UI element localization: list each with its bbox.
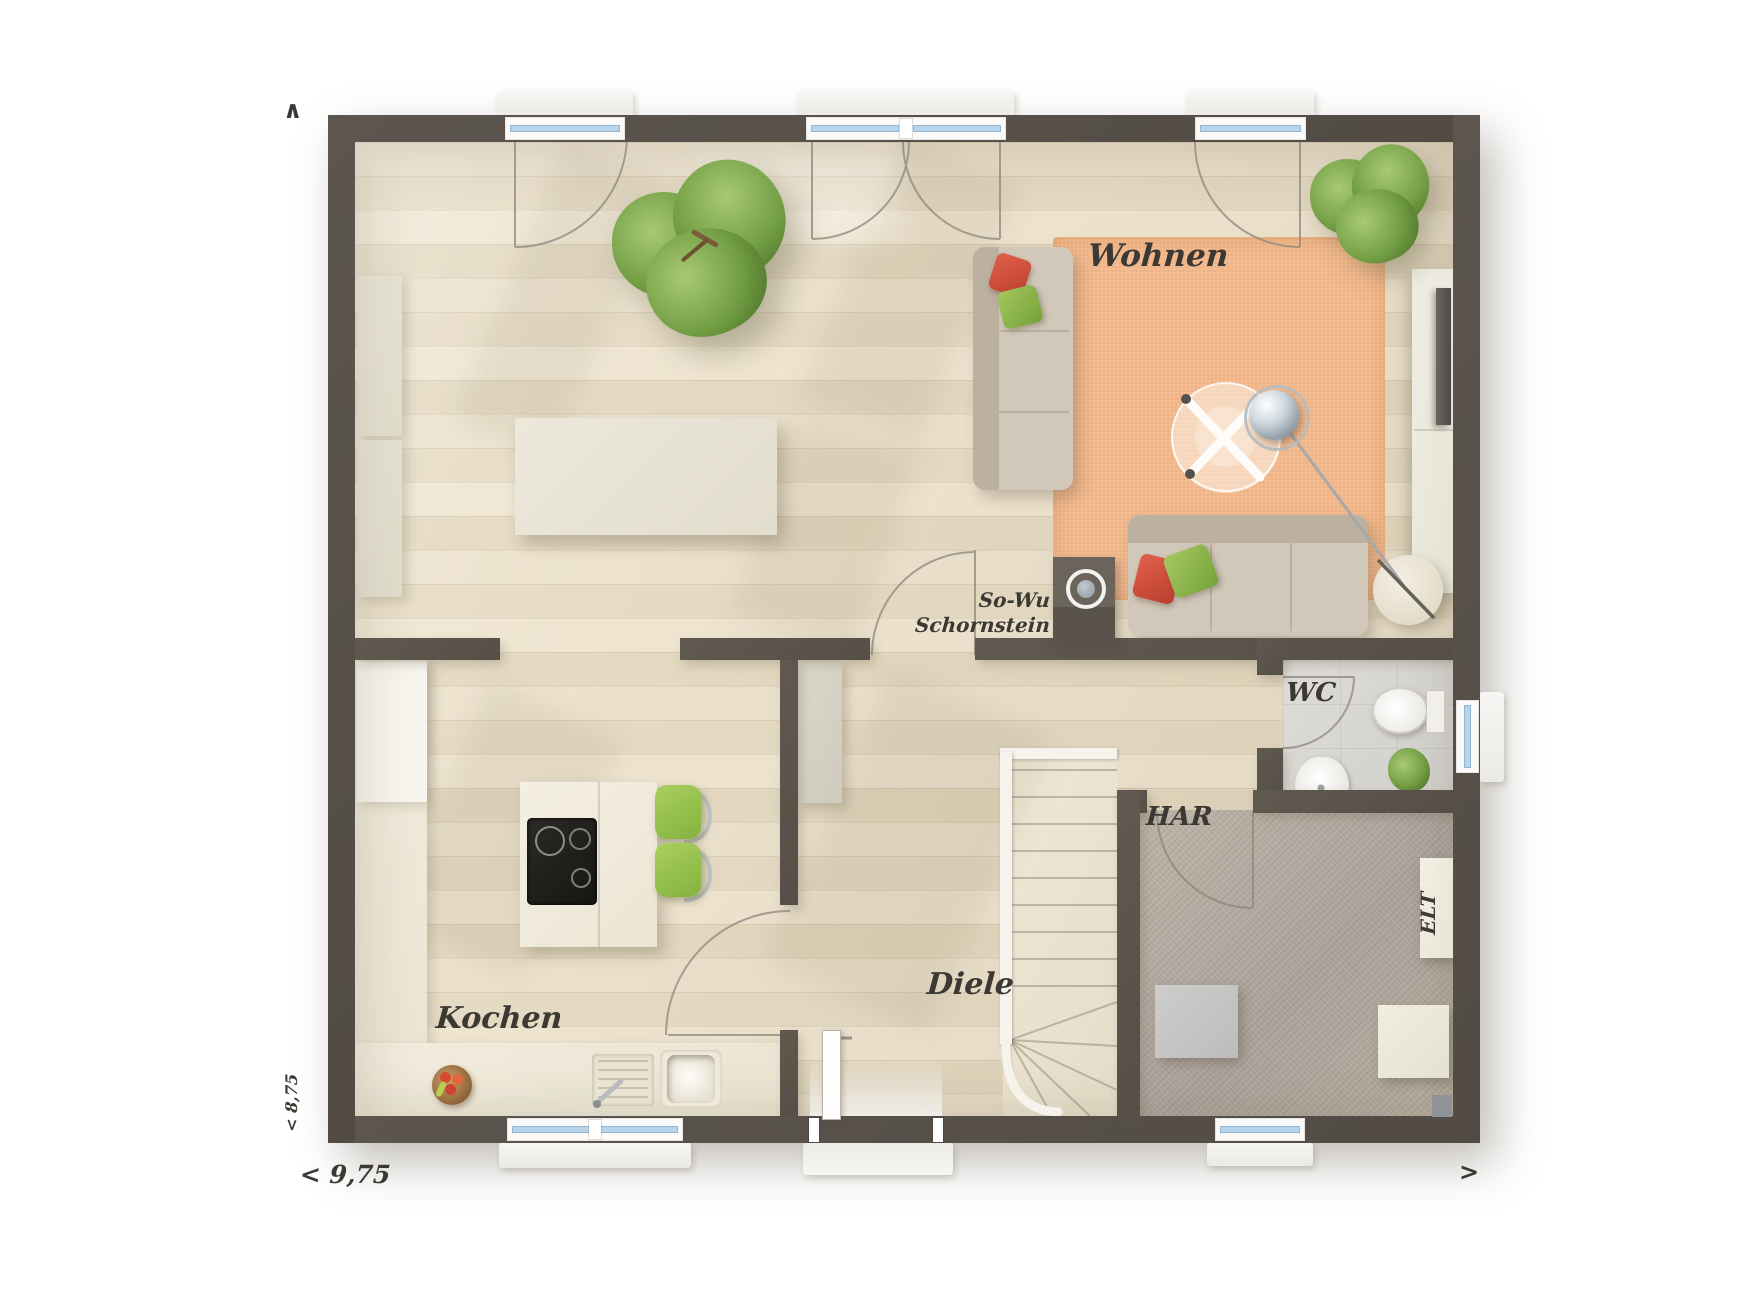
terrace-door-left-glazing: [505, 117, 625, 140]
outer-wall-bottom: [328, 1116, 1480, 1143]
interior-wall: [680, 638, 870, 660]
kitchen-hall-wall: [780, 1030, 798, 1116]
door-jamb: [809, 1118, 819, 1142]
label-wc: WC: [1285, 678, 1337, 708]
chimney: [1053, 557, 1115, 643]
door-jamb: [933, 1118, 943, 1142]
terrace-door-right-glazing: [1195, 117, 1306, 140]
entrance-door-leaf: [822, 1030, 841, 1120]
stair-railing-curve: [1006, 1044, 1058, 1112]
outer-wall-right: [1453, 115, 1480, 1143]
floor-lamp-ball: [1249, 390, 1299, 440]
chimney-ring: [1066, 569, 1106, 609]
kitchen-hall-wall: [780, 660, 798, 905]
har-wall: [1253, 790, 1453, 813]
double-terrace-door-glazing: [806, 117, 1006, 140]
dimension-height: < 8,75: [282, 1047, 308, 1159]
wc-wall-stub: [1257, 748, 1283, 795]
hall-har-wall: [1117, 790, 1140, 1116]
east-marker: >: [1459, 1158, 1479, 1186]
har-window: [1215, 1118, 1305, 1141]
chimney-pipe: [1077, 580, 1095, 598]
label-chimney-line2: Schornstein: [879, 613, 1051, 638]
interior-wall: [975, 638, 1453, 660]
label-kitchen: Kochen: [435, 1001, 564, 1036]
label-chimney: So-Wu Schornstein: [880, 588, 1050, 638]
interior-wall: [355, 638, 500, 660]
north-marker: ∧: [283, 96, 303, 124]
floor-plan-canvas: Wohnen Kochen Diele WC HAR ELT So-Wu Sch…: [0, 0, 1754, 1315]
wc-window: [1456, 700, 1479, 773]
kitchen-faucet: [597, 1081, 621, 1103]
label-hall: Diele: [926, 967, 1015, 1002]
lamp-arm: [1282, 422, 1404, 586]
label-electrical: ELT: [1416, 867, 1452, 962]
label-chimney-line1: So-Wu: [879, 588, 1051, 613]
corner-vent: [1432, 1095, 1452, 1117]
kitchen-window: [507, 1118, 683, 1141]
outer-wall-left: [328, 115, 355, 1143]
label-utility: HAR: [1145, 802, 1213, 832]
lamp-base-stick: [1378, 560, 1434, 618]
dimension-width: < 9,75: [299, 1160, 392, 1189]
label-living: Wohnen: [1087, 238, 1230, 274]
plant-large: [612, 162, 788, 342]
plant-small: [1310, 145, 1430, 267]
wc-wall-stub: [1257, 638, 1283, 675]
